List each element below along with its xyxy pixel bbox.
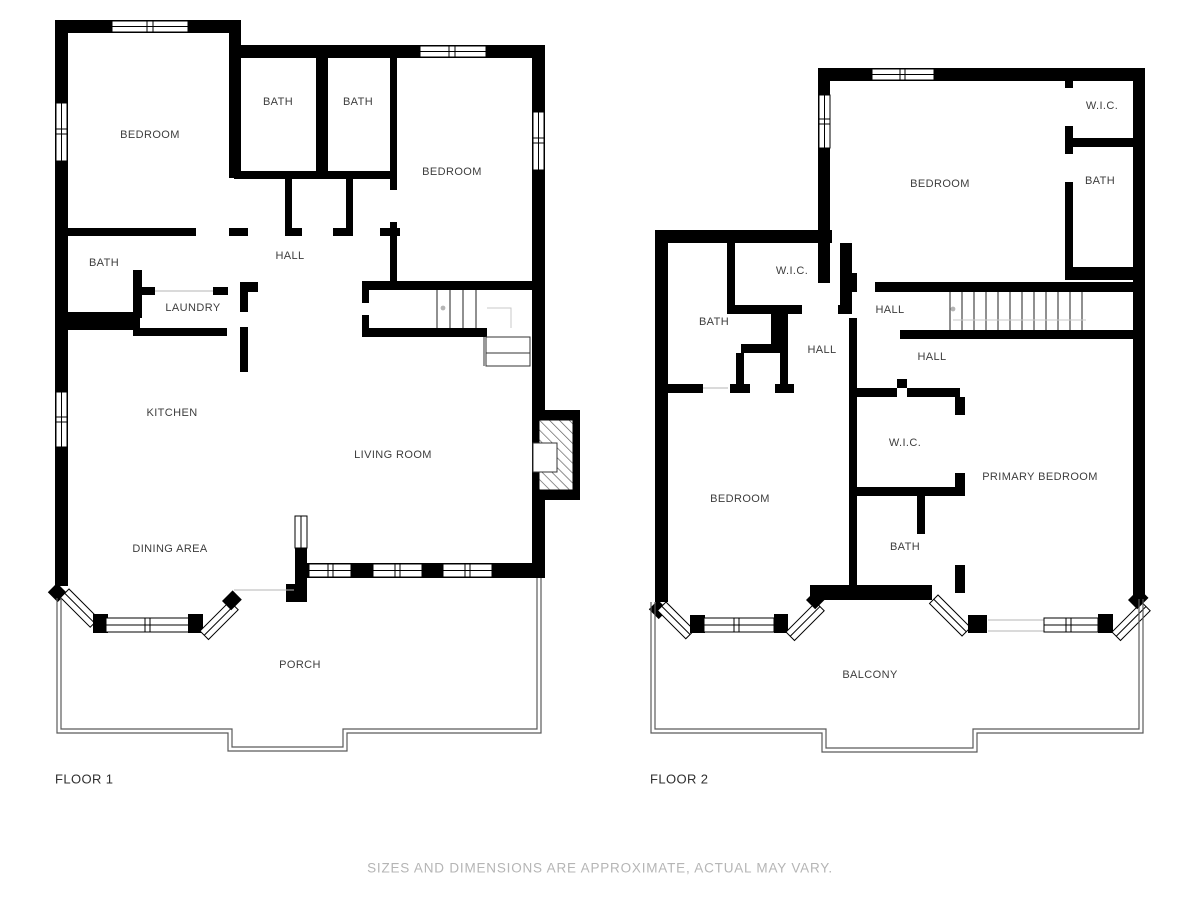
room-label-f2-wic-tr: W.I.C. [1086,100,1118,112]
room-label-f2-wic-left: W.I.C. [776,265,808,277]
window [1044,618,1098,632]
floorplan-page: BEDROOM BATH BATH BEDROOM BATH HALL LAUN… [0,0,1200,900]
room-label-f2-balcony: BALCONY [842,669,897,681]
window [872,69,934,80]
room-label-f2-bedroom-top: BEDROOM [910,178,970,190]
floor1-fireplace [533,410,580,500]
window [112,21,188,32]
room-label-f2-wic-center: W.I.C. [889,437,921,449]
window [533,112,544,170]
room-label-f2-bath-left: BATH [699,316,729,328]
window [819,95,830,148]
floor1-windows [56,21,544,577]
floor1-title: FLOOR 1 [55,772,113,787]
floor1-bay-window [48,576,294,639]
floor2-interior-walls [655,80,1133,593]
room-label-f2-hall-2: HALL [807,344,836,356]
floor1-interior-walls [55,58,533,372]
room-label-f1-living-room: LIVING ROOM [354,449,432,461]
window [56,392,67,447]
floor1-exterior-walls [55,20,545,602]
room-label-f1-bedroom-tl: BEDROOM [120,129,180,141]
room-label-f1-bath-3: BATH [89,257,119,269]
window [106,618,190,632]
window [373,564,422,577]
room-label-f2-bath-tr: BATH [1085,175,1115,187]
room-label-f1-kitchen: KITCHEN [146,407,197,419]
room-label-f1-bath-1: BATH [263,96,293,108]
floor2-bay-window-right [930,589,1151,641]
window [443,564,492,577]
floor2-plan [649,68,1150,752]
disclaimer-text: SIZES AND DIMENSIONS ARE APPROXIMATE, AC… [367,861,833,876]
room-label-f1-hall: HALL [275,250,304,262]
room-label-f1-laundry: LAUNDRY [165,302,220,314]
room-label-f2-hall-3: HALL [917,351,946,363]
floor2-bay-window-left [649,585,932,640]
room-label-f2-hall-1: HALL [875,304,904,316]
room-label-f2-primary-bedroom: PRIMARY BEDROOM [982,471,1098,483]
room-label-f1-porch: PORCH [279,659,321,671]
window [704,618,774,632]
floor2-staircase [950,292,1086,330]
room-label-f2-bath-center: BATH [890,541,920,553]
room-label-f2-bedroom-left: BEDROOM [710,493,770,505]
room-label-f1-bath-2: BATH [343,96,373,108]
floor2-title: FLOOR 2 [650,772,708,787]
window [56,103,67,161]
floorplan-canvas [0,0,1200,900]
window [420,46,486,57]
room-label-f1-dining-area: DINING AREA [132,543,207,555]
room-label-f1-bedroom-tr: BEDROOM [422,166,482,178]
window [295,516,307,548]
window [309,564,351,577]
